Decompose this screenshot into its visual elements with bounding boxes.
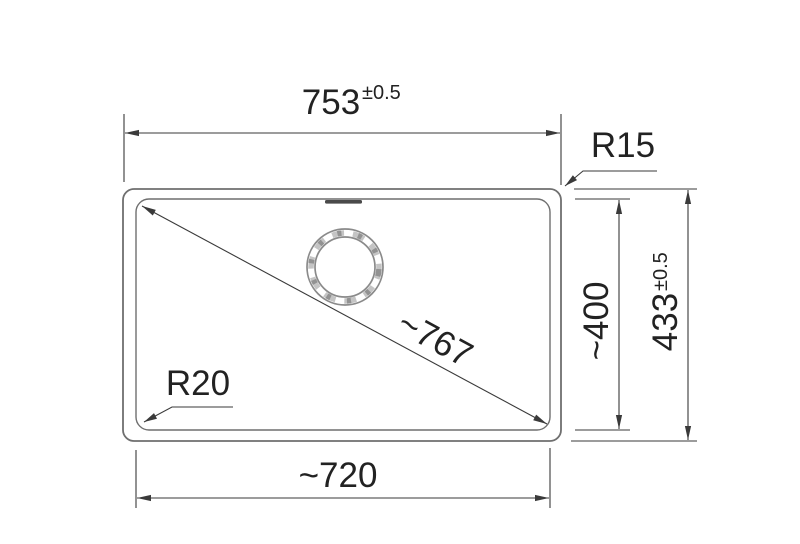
sink-outer-edge xyxy=(123,189,561,441)
drawing-canvas: 753 ±0.5 R15 R20 ~720 ~767 ~400 433 ±0.5 xyxy=(0,0,800,544)
label-bowl-width: ~720 xyxy=(299,456,378,495)
dimension-drawing: 753 ±0.5 R15 R20 ~720 ~767 ~400 433 ±0.5 xyxy=(0,0,800,544)
leader-line-r15 xyxy=(565,171,657,186)
arrow-400-bottom xyxy=(616,415,622,429)
label-overall-depth-group: 433 ±0.5 xyxy=(646,252,685,351)
label-inner-corner-radius: R20 xyxy=(166,364,230,403)
label-bowl-depth-group: ~400 xyxy=(577,282,616,361)
arrow-720-left xyxy=(137,495,151,501)
arrow-400-top xyxy=(616,200,622,214)
arrow-720-right xyxy=(535,495,549,501)
arrow-753-right xyxy=(546,130,560,136)
label-overall-width: 753 xyxy=(302,83,360,122)
arrow-433-top xyxy=(685,190,691,204)
sink-outline-group xyxy=(123,189,561,441)
label-outer-corner-radius: R15 xyxy=(591,126,655,165)
label-overall-depth-tolerance: ±0.5 xyxy=(650,252,672,291)
label-overall-width-tolerance: ±0.5 xyxy=(362,82,401,104)
overflow-slot-mark xyxy=(325,200,362,204)
label-bowl-depth: ~400 xyxy=(577,282,616,361)
arrow-433-bottom xyxy=(685,426,691,440)
label-overall-depth: 433 xyxy=(646,293,685,351)
arrow-753-left xyxy=(125,130,139,136)
